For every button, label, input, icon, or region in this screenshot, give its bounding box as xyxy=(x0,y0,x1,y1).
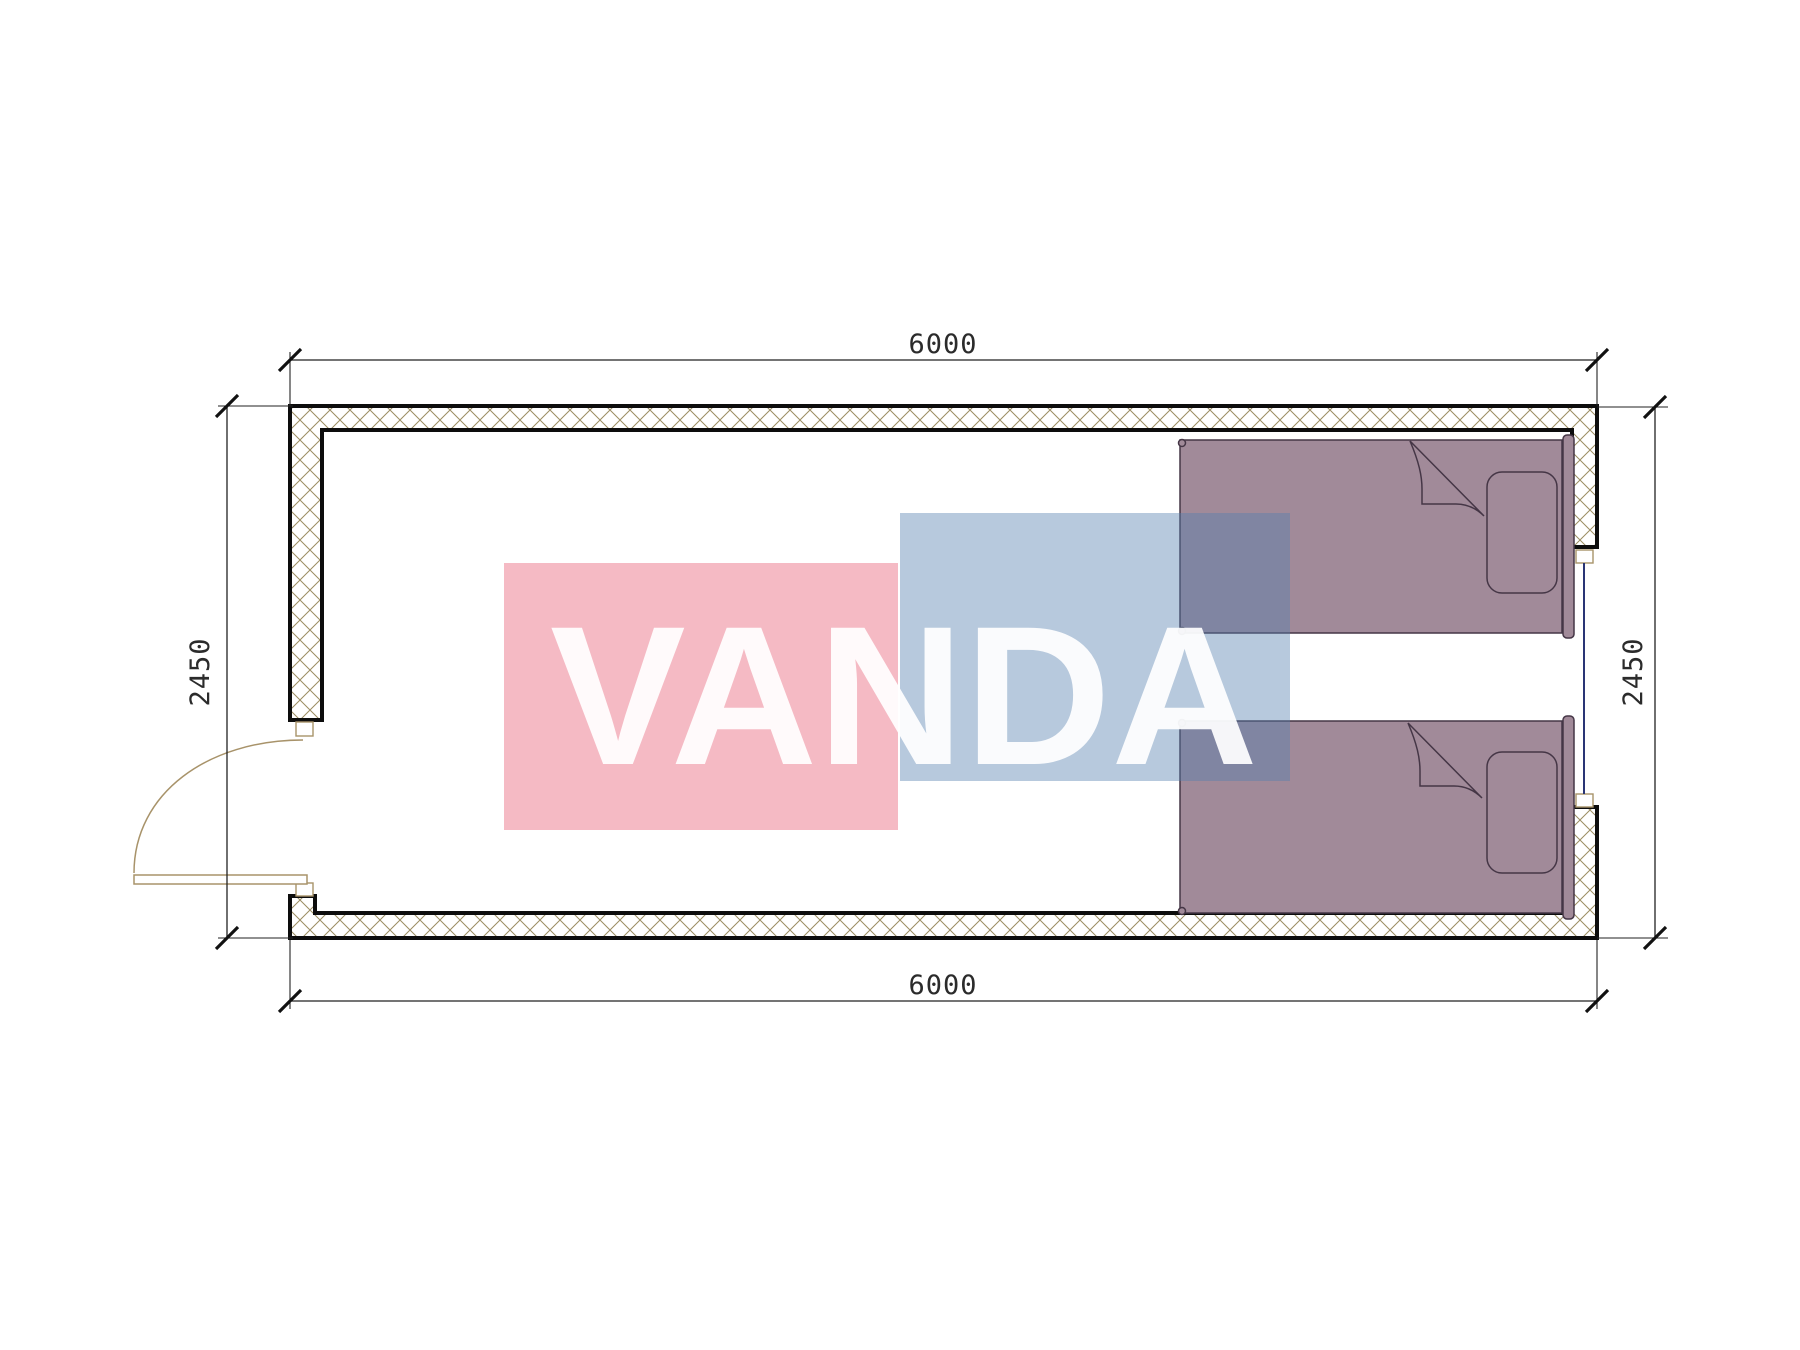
bed-bottom-headboard xyxy=(1563,716,1574,919)
floor-plan-page: 6000 6000 2450 2450 xyxy=(0,0,1800,1350)
dimension-top-label: 6000 xyxy=(908,329,977,360)
dimension-right-label: 2450 xyxy=(1618,637,1649,706)
bed-bottom-pillow xyxy=(1487,752,1557,873)
dimension-right: 2450 xyxy=(1597,396,1668,949)
bed-top-pillow xyxy=(1487,472,1557,593)
door-jamb-top xyxy=(296,722,313,736)
dimension-left: 2450 xyxy=(185,395,293,949)
door-leaf xyxy=(134,875,307,884)
dimension-bottom: 6000 xyxy=(279,940,1608,1012)
door-jamb-bottom xyxy=(296,883,313,896)
bed-top-corner-post xyxy=(1179,440,1186,447)
floor-plan-drawing: 6000 6000 2450 2450 xyxy=(0,0,1800,1350)
window xyxy=(1576,550,1593,807)
door-swing-arc xyxy=(134,740,303,873)
window-jamb-bottom xyxy=(1576,794,1593,807)
bed-bottom-corner-post xyxy=(1179,908,1186,915)
dimension-left-label: 2450 xyxy=(185,637,216,706)
watermark-logo-text: VANDA xyxy=(550,585,1258,806)
watermark: VANDA xyxy=(504,513,1290,830)
door xyxy=(134,722,313,896)
dimension-top: 6000 xyxy=(279,329,1608,406)
bed-top-headboard xyxy=(1563,435,1574,638)
window-jamb-top xyxy=(1576,550,1593,563)
dimension-bottom-label: 6000 xyxy=(908,970,977,1001)
